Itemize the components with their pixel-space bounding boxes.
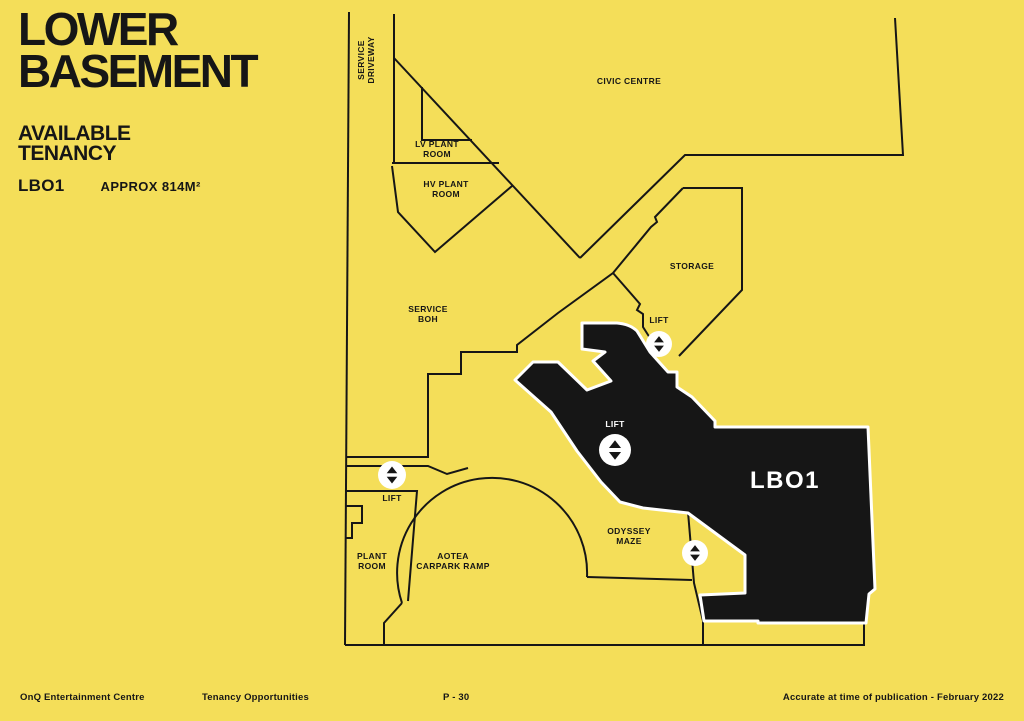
plan-label-line: LIFT [382,493,402,503]
plan-wall-left-steps [346,506,362,538]
plan-label-line: STORAGE [670,261,714,271]
plan-label-line: BOH [418,314,438,324]
plan-label-line: LBO1 [750,467,820,494]
plan-label-line: AOTEA [437,551,469,561]
plan-wall-ramp-base [384,603,402,645]
plan-label-line: LV PLANT [415,139,459,149]
plan-label-line: MAZE [616,536,641,546]
lift-icon-central [599,434,631,466]
plan-label-aotea-carpark-ramp: AOTEACARPARK RAMP [416,551,489,571]
plan-label-line: HV PLANT [423,179,469,189]
floor-plan: SERVICEDRIVEWAYCIVIC CENTRELV PLANTROOMH… [0,0,1024,721]
lift-icon-odyssey [682,540,708,566]
plan-label-line: LIFT [649,315,669,325]
plan-label-line: SERVICE [356,40,366,80]
plan-label-lift-central: LIFT [605,419,625,429]
plan-wall-bottom-border [345,622,864,645]
plan-wall-left-border [345,12,349,645]
plan-wall-odyssey-wedge [688,512,703,645]
plan-label-line: DRIVEWAY [366,36,376,83]
plan-label-line: CARPARK RAMP [416,561,489,571]
footer-site-name: OnQ Entertainment Centre [20,692,145,703]
plan-label-line: SERVICE [408,304,448,314]
plan-wall-odyssey-bottom [587,577,692,580]
plan-label-lv-plant-room: LV PLANTROOM [415,139,459,159]
lift-circle [599,434,631,466]
footer-page-number: P - 30 [443,692,469,703]
lift-icon-west [378,461,406,489]
lift-circle [646,331,672,357]
plan-label-line: ROOM [423,149,451,159]
tenancy-lbo1-shape[interactable] [515,323,875,623]
plan-label-line: CIVIC CENTRE [597,76,661,86]
plan-label-service-boh: SERVICEBOH [408,304,448,324]
plan-wall-storage-right [679,188,742,356]
plan-label-lift-west: LIFT [382,493,402,503]
plan-label-line: LIFT [605,419,625,429]
plan-label-line: ROOM [358,561,386,571]
plan-label-hv-plant-room: HV PLANTROOM [423,179,469,199]
plan-label-plant-room: PLANTROOM [357,551,388,571]
plan-label-line: PLANT [357,551,388,561]
plan-label-lbo1-area: LBO1 [750,467,820,494]
plan-label-odyssey-maze: ODYSSEYMAZE [607,526,651,546]
plan-label-storage: STORAGE [670,261,714,271]
plan-label-service-driveway: SERVICEDRIVEWAY [356,36,376,83]
plan-label-civic-centre: CIVIC CENTRE [597,76,661,86]
plan-label-line: ODYSSEY [607,526,651,536]
plan-wall-carpark-arc [397,478,587,603]
plan-label-line: ROOM [432,189,460,199]
plan-wall-lift-corridor [346,466,468,474]
plan-wall-plant-room [346,491,417,601]
lift-circle [682,540,708,566]
lift-icon-storage [646,331,672,357]
map-labels: SERVICEDRIVEWAYCIVIC CENTRELV PLANTROOMH… [356,36,820,571]
footer-document-name: Tenancy Opportunities [202,692,309,703]
lift-circle [378,461,406,489]
footer-accuracy-note: Accurate at time of publication - Februa… [783,692,1004,703]
plan-label-lift-storage: LIFT [649,315,669,325]
